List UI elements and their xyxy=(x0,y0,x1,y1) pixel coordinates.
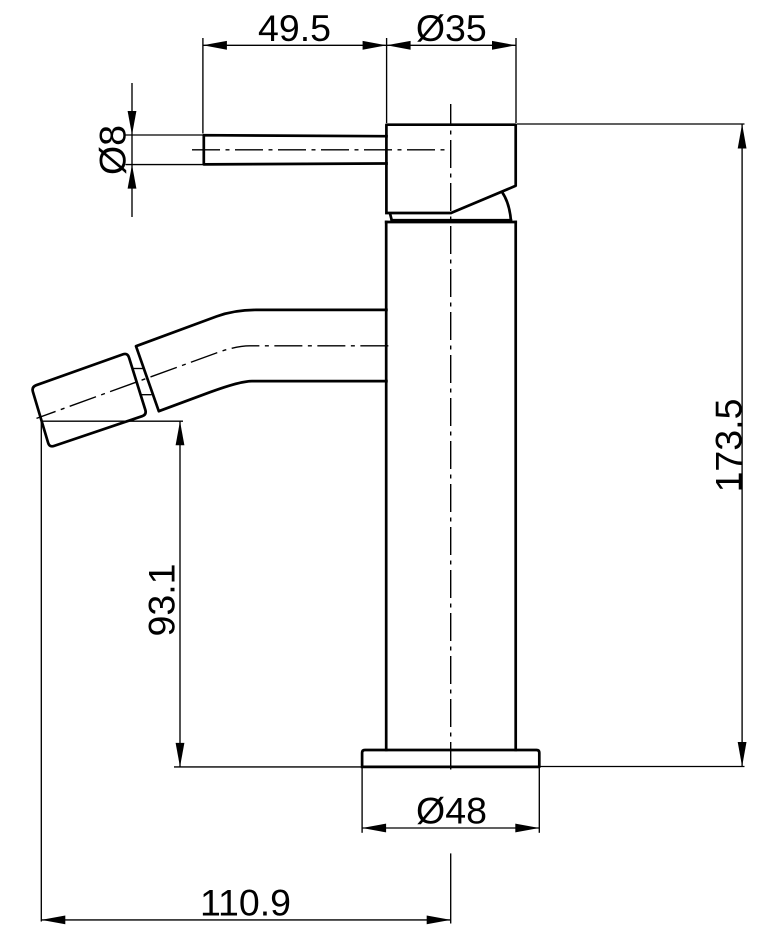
svg-text:Ø48: Ø48 xyxy=(416,790,487,832)
svg-text:93.1: 93.1 xyxy=(141,564,183,637)
svg-text:49.5: 49.5 xyxy=(258,7,331,49)
svg-text:110.9: 110.9 xyxy=(200,882,291,924)
svg-text:173.5: 173.5 xyxy=(708,399,750,493)
svg-text:Ø35: Ø35 xyxy=(416,7,487,49)
svg-text:Ø8: Ø8 xyxy=(92,125,134,175)
